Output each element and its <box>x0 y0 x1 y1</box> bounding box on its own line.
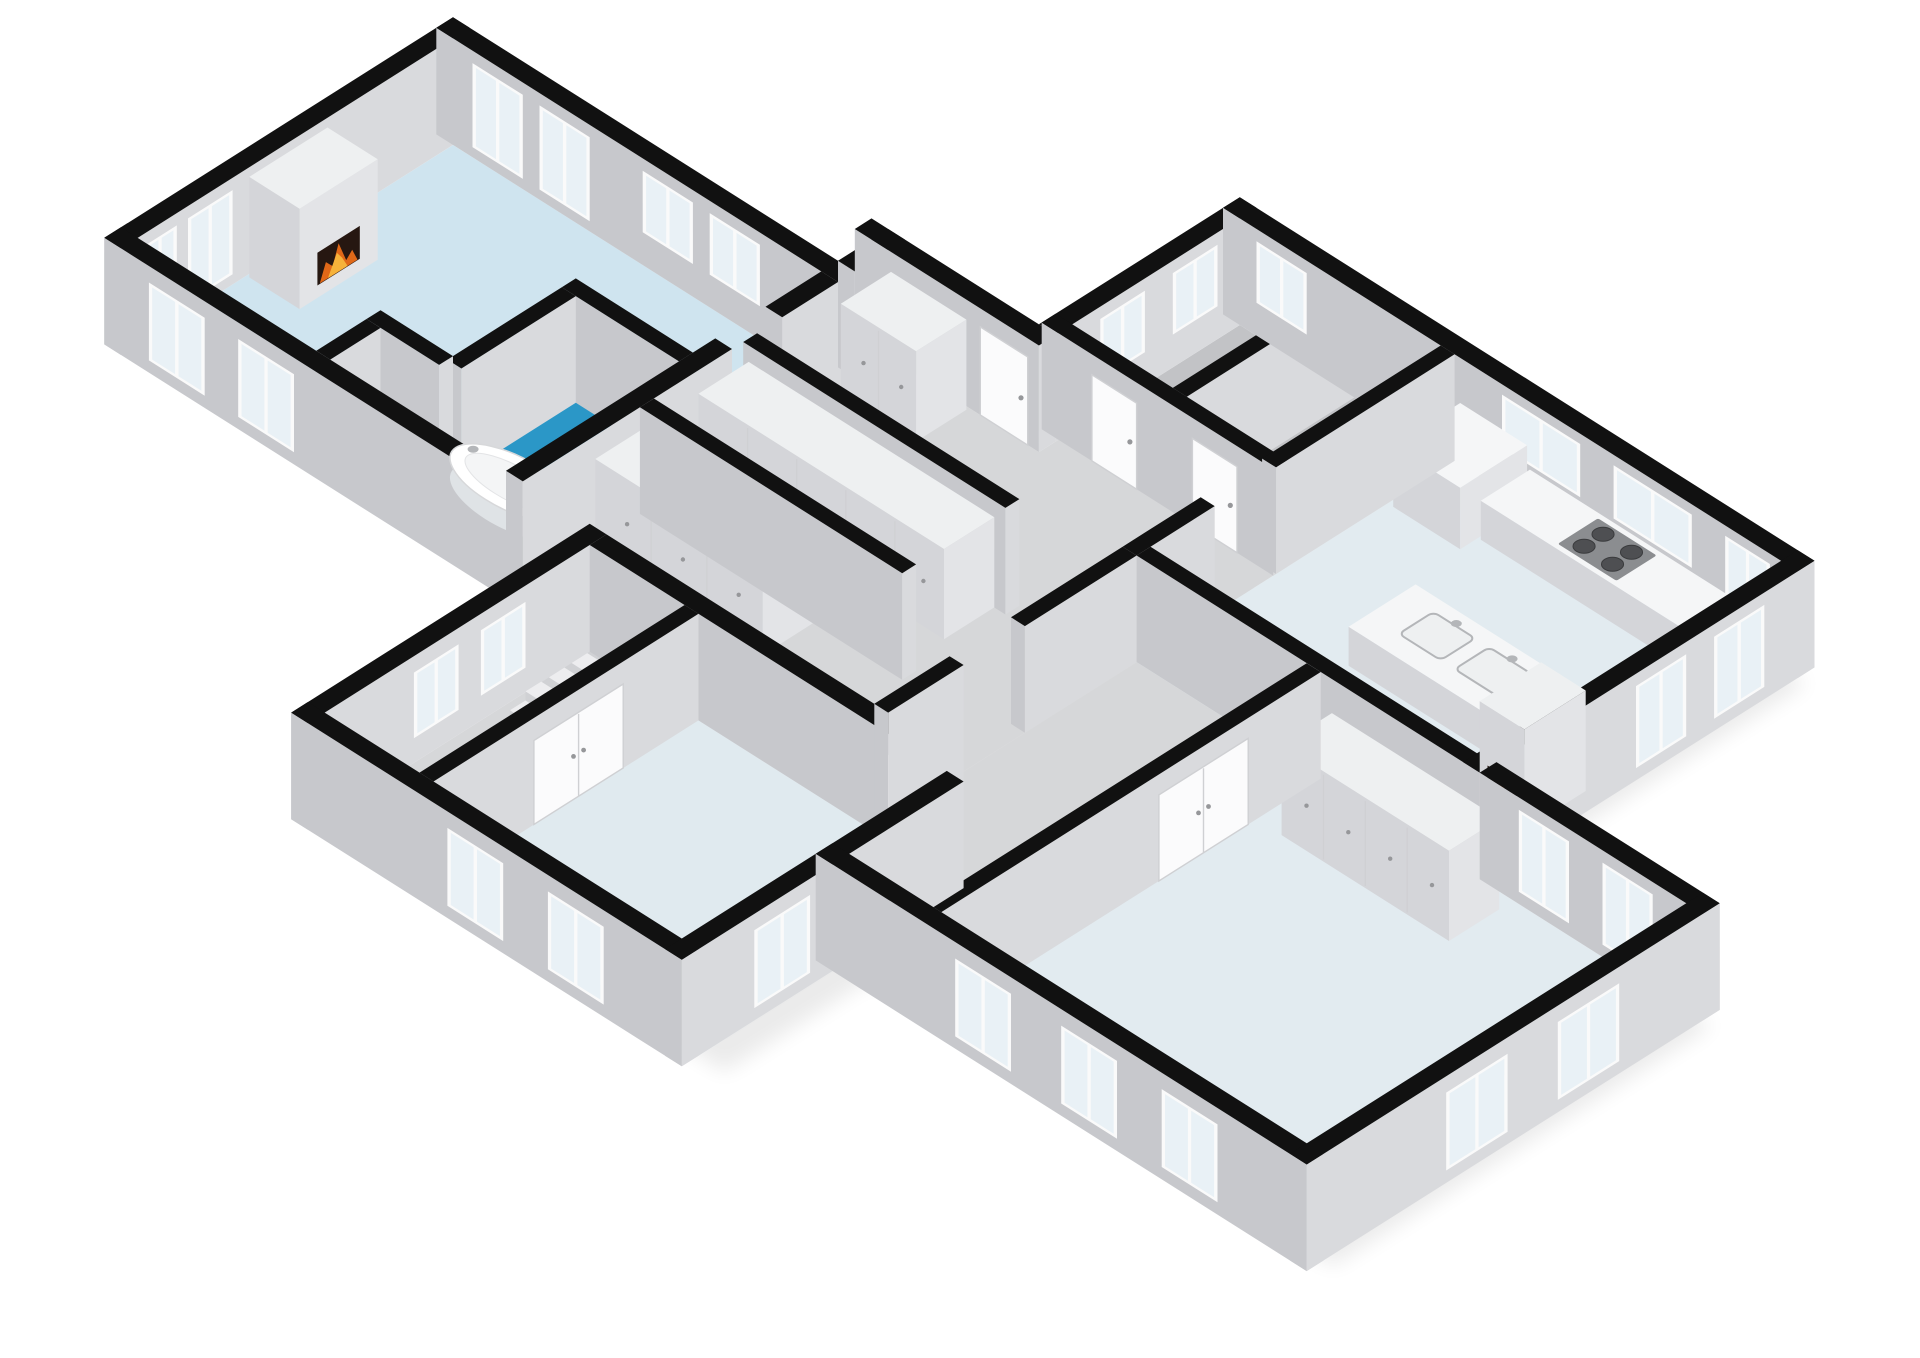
wardrobe-handle <box>1430 883 1434 887</box>
door-handle <box>1196 811 1201 816</box>
window-glass <box>551 896 574 983</box>
window-glass <box>1741 610 1761 699</box>
window-glass <box>484 620 501 691</box>
wall-face <box>665 949 682 1066</box>
window-glass <box>477 849 500 936</box>
window-glass <box>985 980 1008 1067</box>
window-glass <box>1176 263 1193 330</box>
wall-face <box>1011 617 1025 732</box>
wall-face <box>1262 459 1276 574</box>
door-handle <box>1206 804 1211 809</box>
window-glass <box>1124 296 1141 363</box>
wardrobe-handle <box>737 593 741 597</box>
window-glass <box>577 913 600 1000</box>
wall-face <box>902 564 916 679</box>
wardrobe-handle <box>681 557 685 561</box>
window-glass <box>179 304 202 391</box>
window-glass <box>417 662 434 733</box>
window-glass <box>499 83 519 174</box>
wardrobe-handle <box>899 385 903 389</box>
wardrobe-handle <box>1304 804 1308 808</box>
window-glass <box>212 195 229 284</box>
window-glass <box>438 649 455 720</box>
window-glass <box>1663 659 1683 748</box>
window-glass <box>505 607 522 678</box>
window-glass <box>1546 830 1566 919</box>
wall-face <box>874 704 888 819</box>
window-glass <box>1522 815 1542 904</box>
wardrobe-handle <box>861 361 865 365</box>
window-glass <box>1197 250 1214 317</box>
window-glass <box>1065 1031 1088 1118</box>
window-glass <box>566 125 586 216</box>
wall-face <box>1290 1154 1307 1271</box>
window-glass <box>1606 868 1626 957</box>
window-glass <box>959 964 982 1051</box>
window-glass <box>1717 625 1737 714</box>
door-handle <box>1228 503 1233 508</box>
window-glass <box>268 361 291 448</box>
wardrobe-handle <box>1388 857 1392 861</box>
window-glass <box>543 110 563 201</box>
door-handle <box>1018 395 1023 400</box>
window-glass <box>1191 1111 1214 1198</box>
floor-plan-3d <box>0 0 1920 1358</box>
window-glass <box>784 900 807 987</box>
wardrobe-handle <box>1346 830 1350 834</box>
floor-plan-stage <box>0 0 1920 1358</box>
wall-face <box>1005 499 1019 614</box>
wardrobe-handle <box>625 522 629 526</box>
window-glass <box>476 68 496 159</box>
window-glass <box>451 833 474 920</box>
door-handle <box>1127 439 1132 444</box>
window-glass <box>242 344 265 431</box>
window-glass <box>1091 1047 1114 1134</box>
door-handle <box>571 754 576 759</box>
window-glass <box>152 288 175 375</box>
window-glass <box>758 917 781 1004</box>
wardrobe-handle <box>921 579 925 583</box>
door-handle <box>581 748 586 753</box>
window-glass <box>1639 674 1659 763</box>
window-glass <box>1165 1094 1188 1181</box>
